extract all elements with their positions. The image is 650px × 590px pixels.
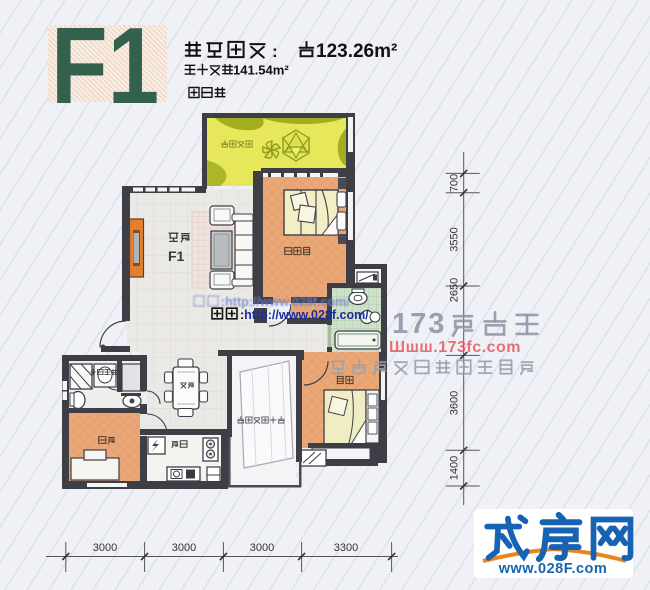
svg-text:3600: 3600: [449, 391, 461, 415]
svg-text:F1: F1: [168, 248, 185, 264]
svg-text::: :: [272, 42, 278, 61]
svg-text:3000: 3000: [93, 542, 117, 554]
svg-text:2650: 2650: [449, 278, 461, 302]
svg-text:141.54m²: 141.54m²: [233, 63, 289, 78]
svg-text::http://www.028f.com/: :http://www.028f.com/: [240, 308, 369, 322]
svg-text:3000: 3000: [172, 542, 196, 554]
svg-text:3550: 3550: [449, 227, 461, 251]
svg-text:Шшш.173fc.com: Шшш.173fc.com: [389, 339, 521, 356]
svg-text:3300: 3300: [334, 542, 358, 554]
svg-text:3000: 3000: [250, 542, 274, 554]
svg-text:www.028F.com: www.028F.com: [498, 561, 608, 577]
svg-text:1400: 1400: [449, 456, 461, 480]
svg-text:700: 700: [449, 174, 461, 192]
svg-text::http://www.028f.com/: :http://www.028f.com/: [221, 295, 350, 309]
svg-text:173: 173: [392, 308, 446, 340]
svg-text:123.26m²: 123.26m²: [316, 41, 397, 62]
